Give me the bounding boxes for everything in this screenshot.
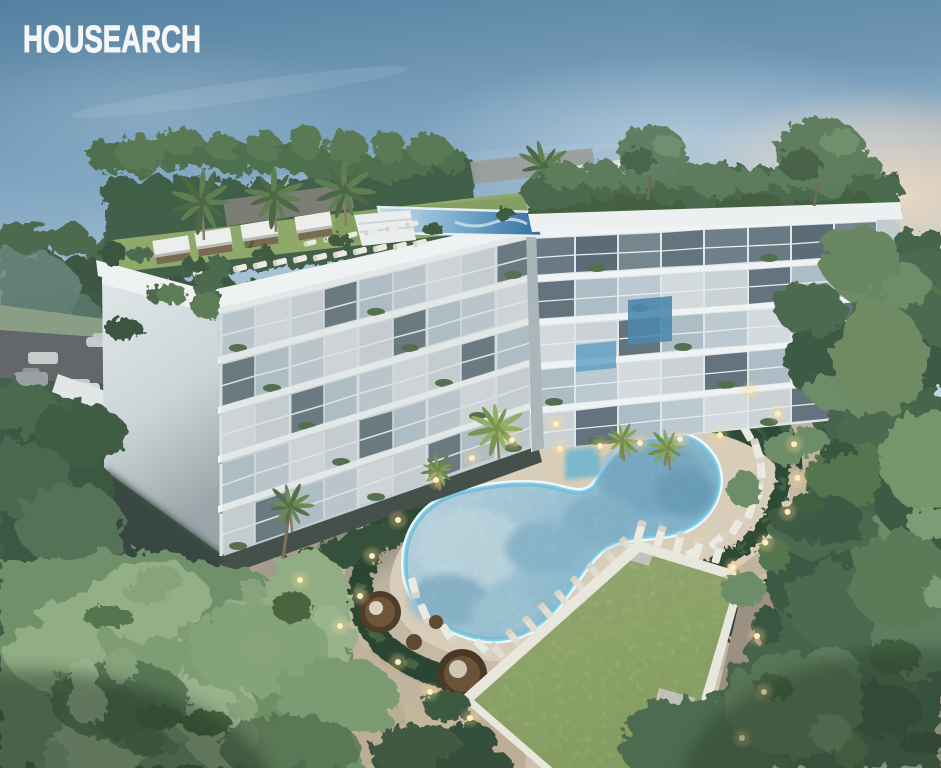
svg-text:HOUSEARCH: HOUSEARCH <box>23 19 201 61</box>
